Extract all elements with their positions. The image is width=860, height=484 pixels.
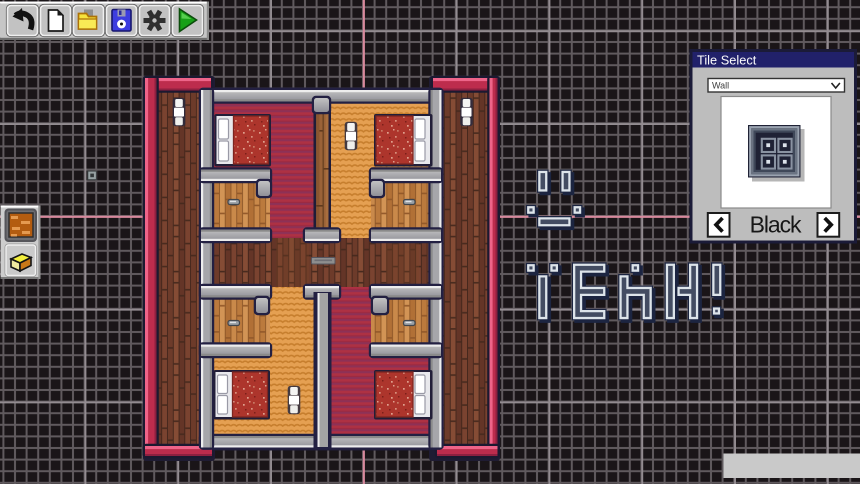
svg-text:Wall: Wall: [712, 80, 729, 90]
svg-text:Tile Select: Tile Select: [697, 53, 757, 68]
svg-text:Black: Black: [750, 212, 802, 238]
